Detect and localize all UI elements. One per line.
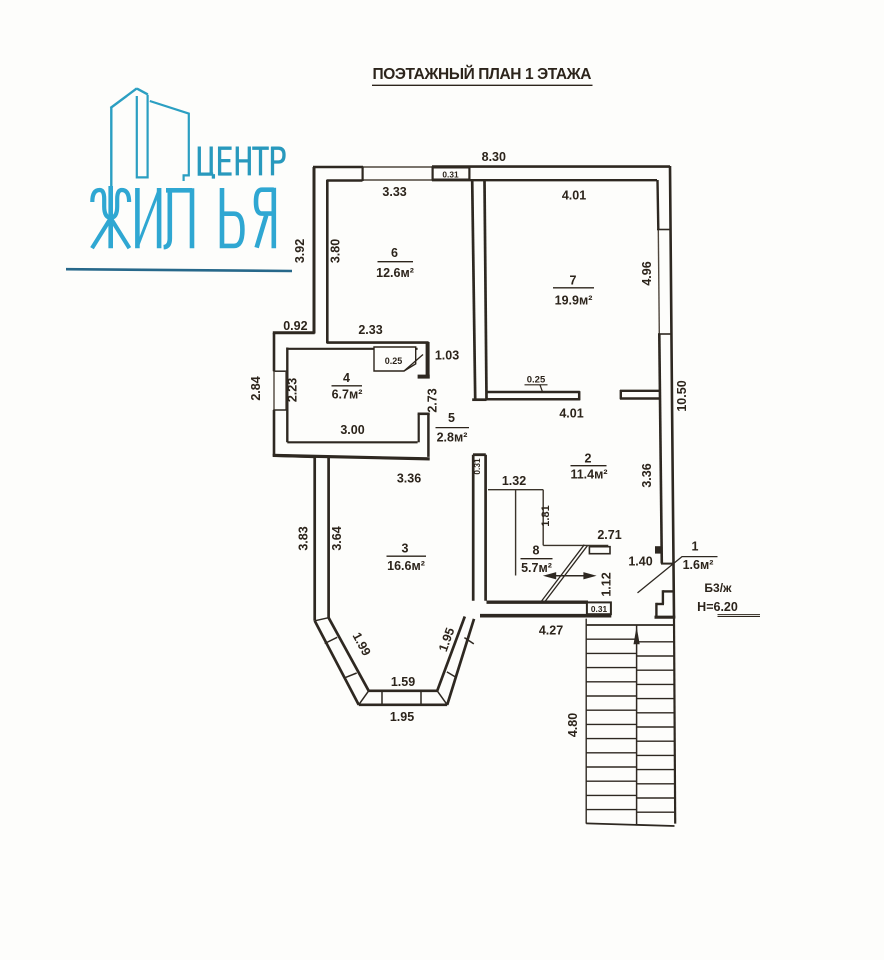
svg-text:2.71: 2.71 [597, 528, 621, 542]
svg-text:Н=6.20: Н=6.20 [697, 600, 738, 614]
svg-text:3.36: 3.36 [397, 472, 421, 486]
svg-text:4.01: 4.01 [559, 407, 583, 421]
svg-text:1.40: 1.40 [628, 554, 652, 568]
svg-text:1.03: 1.03 [435, 349, 459, 363]
svg-text:1.12: 1.12 [600, 572, 614, 596]
svg-text:5.7м²: 5.7м² [521, 561, 552, 575]
svg-text:0.31: 0.31 [442, 169, 459, 179]
svg-text:Б3/ж: Б3/ж [704, 581, 732, 595]
svg-text:0.31: 0.31 [472, 458, 482, 475]
svg-text:3.64: 3.64 [330, 526, 344, 550]
svg-text:0.92: 0.92 [283, 319, 307, 333]
svg-text:5: 5 [448, 411, 455, 425]
svg-text:10.50: 10.50 [675, 380, 689, 411]
svg-text:19.9м²: 19.9м² [555, 294, 593, 308]
svg-text:2.23: 2.23 [286, 378, 300, 402]
svg-text:6: 6 [391, 246, 398, 260]
svg-text:2.8м²: 2.8м² [437, 431, 468, 445]
svg-text:8: 8 [533, 543, 540, 557]
svg-text:12.6м²: 12.6м² [376, 266, 414, 280]
svg-text:0.25: 0.25 [527, 375, 546, 386]
svg-text:2.84: 2.84 [249, 376, 263, 400]
svg-text:2.33: 2.33 [358, 323, 382, 337]
svg-text:6.7м²: 6.7м² [332, 388, 363, 402]
svg-text:8.30: 8.30 [482, 150, 506, 164]
svg-text:3.92: 3.92 [293, 239, 307, 263]
svg-text:16.6м²: 16.6м² [387, 559, 425, 573]
svg-text:1.32: 1.32 [502, 474, 526, 488]
svg-text:1.81: 1.81 [540, 505, 552, 526]
svg-text:1.6м²: 1.6м² [683, 558, 714, 572]
svg-text:3.00: 3.00 [340, 423, 364, 437]
svg-text:4.01: 4.01 [562, 189, 586, 203]
svg-text:3.36: 3.36 [640, 463, 654, 487]
svg-text:2: 2 [585, 451, 592, 465]
svg-text:2.73: 2.73 [426, 388, 440, 412]
svg-text:1: 1 [692, 539, 699, 553]
svg-text:0.31: 0.31 [591, 604, 608, 614]
svg-text:4: 4 [343, 371, 350, 385]
svg-text:ПОЭТАЖНЫЙ ПЛАН 1 ЭТАЖА: ПОЭТАЖНЫЙ ПЛАН 1 ЭТАЖА [373, 65, 592, 83]
svg-text:3: 3 [402, 541, 409, 555]
svg-text:1.99: 1.99 [350, 630, 374, 658]
svg-text:1.59: 1.59 [391, 675, 415, 689]
svg-text:4.96: 4.96 [640, 261, 654, 285]
svg-text:7: 7 [570, 273, 577, 287]
svg-text:1.95: 1.95 [436, 626, 457, 654]
svg-text:0.25: 0.25 [385, 356, 403, 366]
svg-text:3.33: 3.33 [382, 185, 406, 199]
svg-text:4.27: 4.27 [539, 623, 563, 637]
svg-text:11.4м²: 11.4м² [570, 467, 607, 481]
svg-text:3.80: 3.80 [329, 239, 343, 263]
svg-text:4.80: 4.80 [566, 713, 580, 737]
svg-text:3.83: 3.83 [297, 526, 311, 550]
svg-text:1.95: 1.95 [390, 710, 414, 724]
